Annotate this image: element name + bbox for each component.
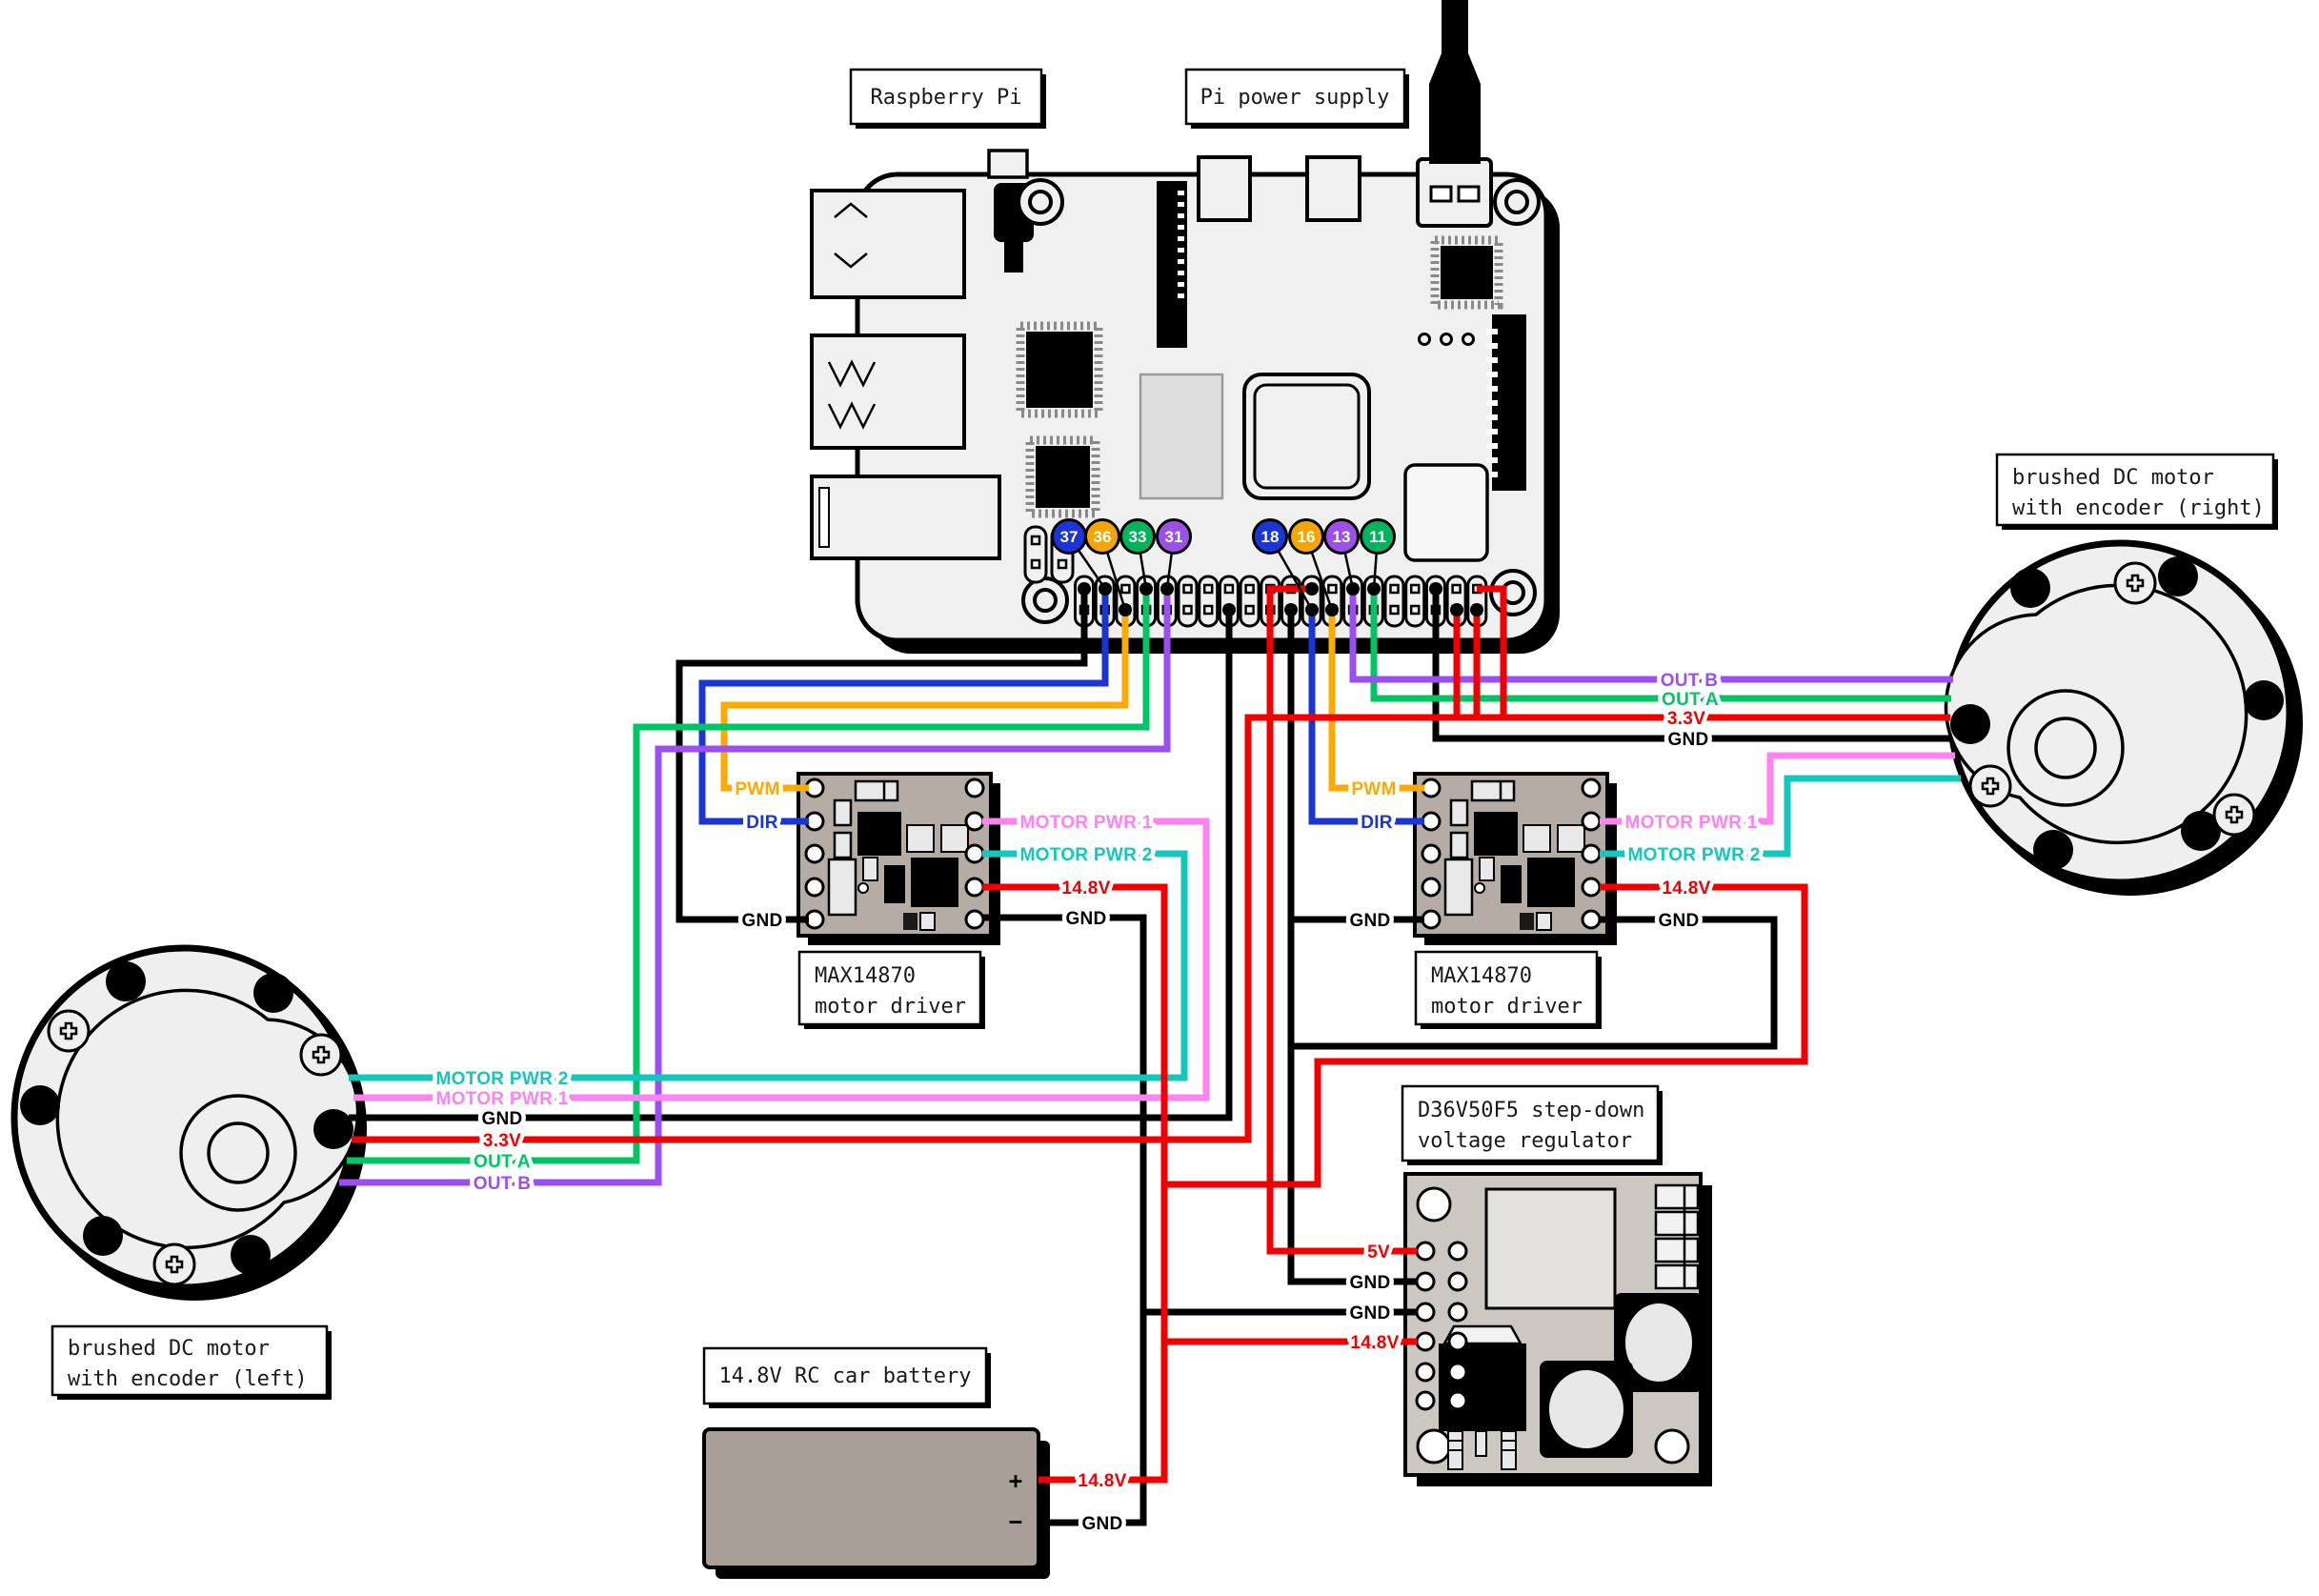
motor-right-label-line1: brushed DC motor — [2012, 466, 2214, 490]
test-pad — [1420, 334, 1430, 345]
wire-label-out-a: OUT A — [1662, 690, 1719, 710]
chip-qfp-b — [1030, 440, 1096, 514]
motor-driver-left-label-line1: MAX14870 — [815, 964, 916, 988]
wire-label-gnd: GND — [1065, 909, 1106, 929]
usbc-contact-right — [1459, 187, 1479, 201]
motor-right-label-line2: with encoder (right) — [2012, 496, 2265, 520]
motor-driver-right — [1415, 774, 1617, 945]
wire-label-gnd: GND — [1349, 1273, 1390, 1293]
raspberry-pi-label: Raspberry Pi — [851, 70, 1046, 129]
soc-shield — [1244, 374, 1369, 498]
wire-label-motor-pwr-1: MOTOR PWR 1 — [1019, 813, 1152, 833]
gpio-badge-number: 31 — [1165, 528, 1183, 546]
gpio-badge-36: 36 — [1086, 520, 1119, 554]
wire-label-motor-pwr-2: MOTOR PWR 2 — [1019, 845, 1152, 865]
usb-port-stack-1 — [812, 191, 964, 297]
wifi-module — [1405, 465, 1487, 560]
wire-label-out-b: OUT B — [474, 1174, 532, 1194]
screw-icon — [154, 1244, 194, 1284]
wire-label-gnd: GND — [1081, 1514, 1122, 1534]
wire-label-gnd: GND — [1349, 911, 1390, 931]
pi-power-supply-label-text: Pi power supply — [1200, 86, 1390, 110]
gpio-badge-number: 37 — [1060, 528, 1079, 546]
wire-label-motor-pwr-1: MOTOR PWR 1 — [435, 1089, 568, 1109]
csi-connector — [1157, 181, 1187, 348]
regulator-label: D36V50F5 step-down voltage regulator — [1402, 1086, 1663, 1165]
wire-label-3v3: 3.3V — [483, 1131, 521, 1151]
wire-label-14v8: 14.8V — [1350, 1333, 1399, 1353]
wire-label-14v8: 14.8V — [1078, 1471, 1126, 1491]
motor-right-label: brushed DC motor with encoder (right) — [1997, 455, 2278, 530]
voltage-regulator — [1405, 1174, 1712, 1486]
gpio-badge-16: 16 — [1290, 520, 1323, 554]
wire-label-gnd: GND — [481, 1109, 522, 1129]
gpio-badge-number: 16 — [1298, 528, 1316, 546]
wire-label-dir: DIR — [746, 813, 778, 833]
chip-qfp-c — [1435, 240, 1499, 305]
wire-label-gnd: GND — [741, 911, 782, 931]
battery: + − — [704, 1429, 1050, 1579]
hdmi-port-1 — [1307, 157, 1360, 220]
battery-label: 14.8V RC car battery — [704, 1348, 991, 1408]
wire-label-dir: DIR — [1361, 813, 1393, 833]
wire-label-motor-pwr-1: MOTOR PWR 1 — [1624, 813, 1757, 833]
motor-driver-left-label: MAX14870 motor driver — [799, 952, 985, 1029]
motor-driver-left-label-line2: motor driver — [815, 995, 966, 1019]
electrolytic-capacitor — [1540, 1361, 1633, 1458]
wire-label-14v8: 14.8V — [1061, 879, 1110, 899]
battery-minus-sign: − — [1009, 1508, 1022, 1535]
screw-icon — [49, 1011, 89, 1051]
mount-hole-icon — [1495, 180, 1539, 224]
audio-jack-tab — [989, 151, 1027, 177]
wire-label-out-b: OUT B — [1661, 671, 1719, 691]
diagram-canvas: + − — [0, 0, 2319, 1596]
screw-icon — [2115, 563, 2155, 603]
screw-icon — [2214, 795, 2254, 835]
motor-left-label: brushed DC motor with encoder (left) — [52, 1326, 332, 1400]
motor-driver-left — [798, 774, 1000, 945]
av-jack-stem — [1004, 240, 1023, 273]
regulator-label-line2: voltage regulator — [1418, 1129, 1632, 1153]
motor-left-label-line2: with encoder (left) — [68, 1367, 308, 1391]
pi-power-supply-label: Pi power supply — [1186, 70, 1409, 129]
motor-left-shaft — [209, 1123, 268, 1182]
dsi-connector — [1486, 314, 1526, 491]
gpio-header — [1076, 576, 1486, 626]
ram-chip — [1140, 374, 1222, 498]
motor-driver-right-label: MAX14870 motor driver — [1416, 952, 1602, 1029]
chip-qfp-a — [1020, 326, 1099, 414]
wire-label-pwm: PWM — [735, 779, 779, 799]
gpio-badge-33: 33 — [1121, 520, 1155, 554]
battery-label-text: 14.8V RC car battery — [719, 1364, 972, 1388]
motor-right — [1946, 543, 2303, 896]
gpio-badge-13: 13 — [1325, 520, 1359, 554]
gpio-badge-number: 33 — [1129, 528, 1147, 546]
wire-label-14v8: 14.8V — [1662, 879, 1710, 899]
wire-label-3v3: 3.3V — [1667, 709, 1705, 729]
wire-label-gnd: GND — [1349, 1303, 1390, 1323]
raspberry-pi-label-text: Raspberry Pi — [871, 86, 1022, 110]
power-cable — [1442, 0, 1468, 57]
motor-driver-right-label-line2: motor driver — [1431, 995, 1583, 1019]
test-pad — [1463, 334, 1474, 345]
power-plug — [1429, 53, 1481, 164]
usb-port-stack-2 — [812, 335, 964, 448]
wire-14v8-battery-riser — [982, 887, 1164, 1480]
regulator-label-line1: D36V50F5 step-down — [1418, 1099, 1644, 1122]
ethernet-port — [812, 476, 999, 558]
wire-label-pwm: PWM — [1351, 779, 1396, 799]
wire-label-5v: 5V — [1367, 1242, 1390, 1263]
battery-plus-sign: + — [1009, 1467, 1022, 1494]
wire-label-motor-pwr-2: MOTOR PWR 2 — [435, 1069, 568, 1089]
gpio-badge-number: 36 — [1094, 528, 1112, 546]
hdmi-port-0 — [1199, 157, 1250, 220]
gpio-badge-number: 13 — [1333, 528, 1351, 546]
gpio-badge-11: 11 — [1361, 520, 1395, 554]
test-pad — [1442, 334, 1452, 345]
wire-label-out-a: OUT A — [474, 1152, 531, 1172]
motor-right-shaft — [2036, 718, 2095, 778]
gpio-badge-31: 31 — [1158, 520, 1191, 554]
mount-hole-icon — [1023, 578, 1067, 622]
wire-mpwr1-right — [1600, 756, 1955, 821]
wire-label-motor-pwr-2: MOTOR PWR 2 — [1627, 845, 1760, 865]
motor-left-label-line1: brushed DC motor — [68, 1337, 270, 1361]
usbc-contact-left — [1431, 187, 1451, 201]
gpio-badge-37: 37 — [1053, 520, 1086, 554]
screw-icon — [1970, 766, 2010, 806]
motor-driver-right-label-line1: MAX14870 — [1431, 964, 1532, 988]
mount-hole-icon — [1018, 180, 1062, 224]
wires — [339, 589, 1961, 1523]
mount-hole-icon — [1491, 571, 1535, 615]
gpio-badge-18: 18 — [1254, 520, 1287, 554]
motor-left — [14, 948, 367, 1301]
gpio-badge-number: 18 — [1261, 528, 1280, 546]
wiring-diagram: + − — [0, 0, 2319, 1596]
gpio-badge-number: 11 — [1369, 528, 1386, 546]
screw-icon — [301, 1035, 341, 1075]
wire-label-gnd: GND — [1667, 730, 1708, 750]
wire-label-gnd: GND — [1658, 911, 1699, 931]
